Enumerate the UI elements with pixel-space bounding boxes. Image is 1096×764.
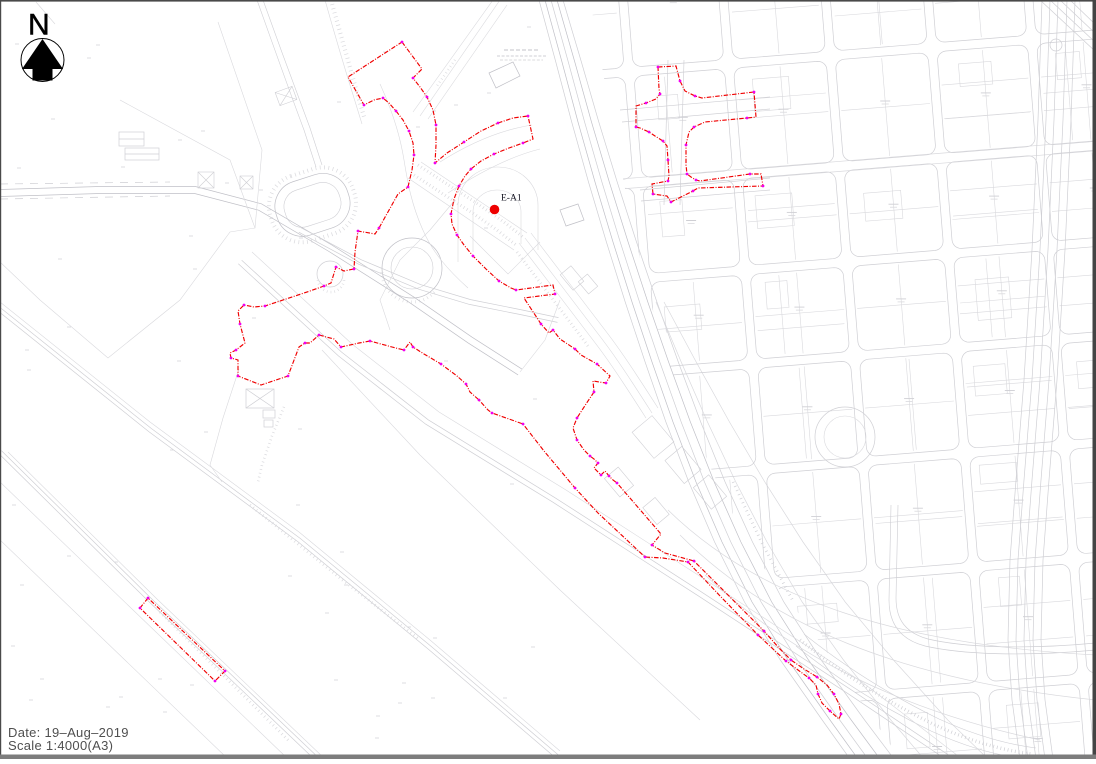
svg-text:Scale 1:4000(A3): Scale 1:4000(A3): [8, 738, 113, 753]
svg-text:E-A1: E-A1: [501, 194, 522, 204]
svg-text:N: N: [28, 9, 50, 42]
